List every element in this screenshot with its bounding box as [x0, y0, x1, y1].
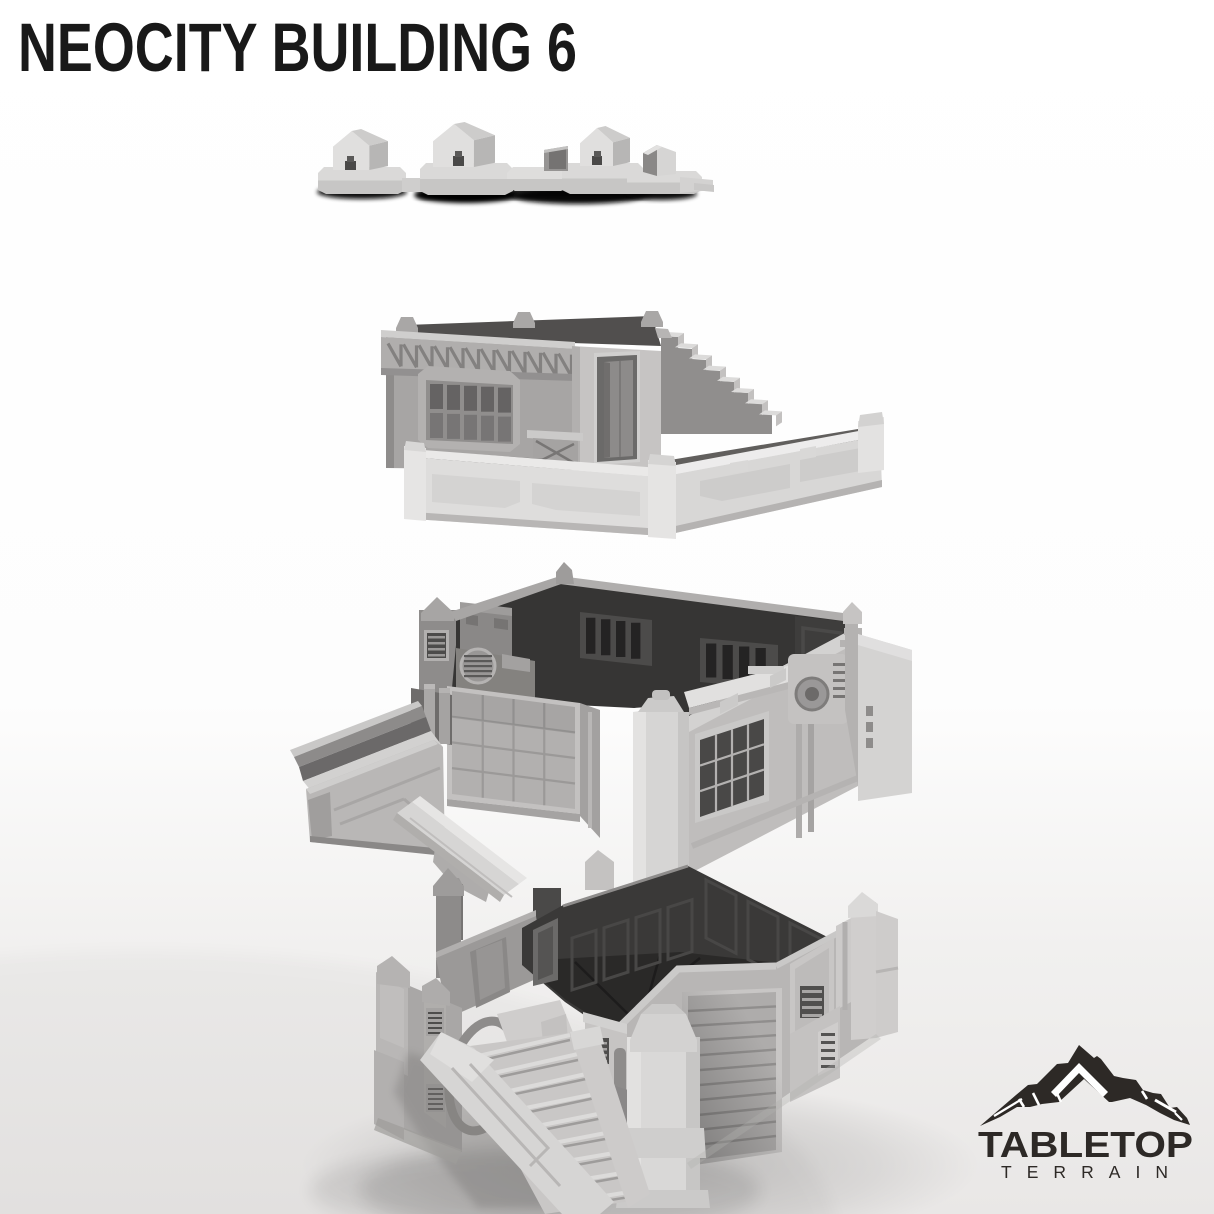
svg-text:TABLETOP: TABLETOP [978, 1124, 1193, 1165]
svg-text:NEOCITY BUILDING 6: NEOCITY BUILDING 6 [18, 9, 577, 86]
